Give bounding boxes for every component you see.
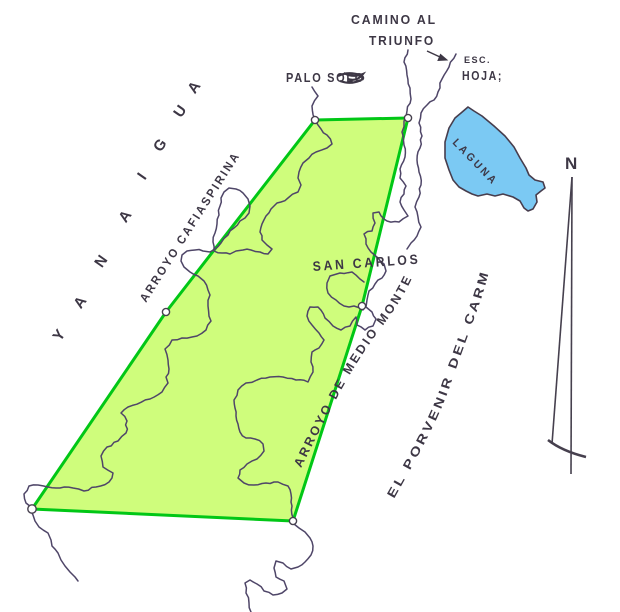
svg-text:CAMINO AL: CAMINO AL — [351, 12, 437, 27]
svg-text:HOJA;: HOJA; — [462, 68, 503, 83]
svg-text:N: N — [565, 154, 577, 173]
svg-text:ESC.: ESC. — [464, 55, 491, 66]
svg-text:TRIUNFO: TRIUNFO — [369, 33, 435, 48]
